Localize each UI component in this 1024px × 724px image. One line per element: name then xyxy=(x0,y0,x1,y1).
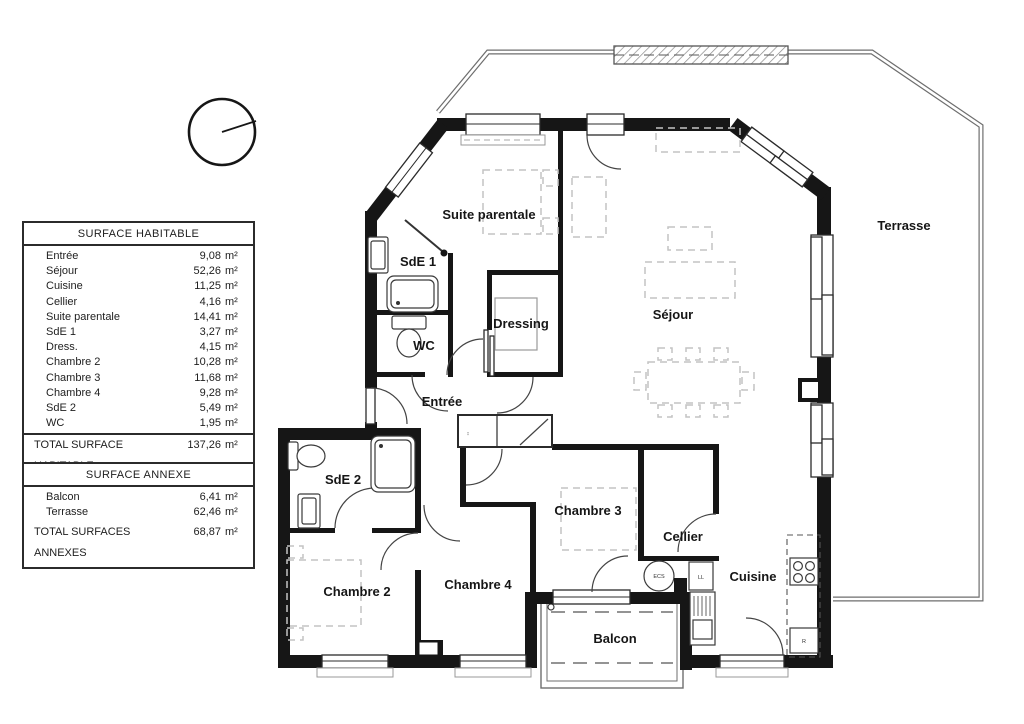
row-label: Dress. xyxy=(24,340,179,355)
row-value: 10,28 xyxy=(179,355,221,370)
row-label: Chambre 2 xyxy=(24,355,179,370)
door-arc-sde2 xyxy=(335,488,375,528)
table-row: Séjour 52,26 m² xyxy=(24,264,253,279)
window-right-lower xyxy=(811,403,833,477)
door-arc-chambre3 xyxy=(466,449,502,485)
row-unit: m² xyxy=(221,340,253,355)
table-row: Suite parentale 14,41 m² xyxy=(24,310,253,325)
sink-sde1 xyxy=(368,237,388,273)
row-unit: m² xyxy=(221,371,253,386)
surface-annexe-table: SURFACE ANNEXE Balcon 6,41 m² Terrasse 6… xyxy=(22,462,255,569)
room-label-cellier: Cellier xyxy=(663,529,703,544)
floorplan-page: ↕ xyxy=(0,0,1024,724)
row-value: 6,41 xyxy=(179,490,221,505)
total-label: TOTAL SURFACES ANNEXES xyxy=(24,522,173,564)
bed-suite-parentale xyxy=(483,170,558,234)
surface-annexe-title: SURFACE ANNEXE xyxy=(24,464,253,487)
table-row: Chambre 4 9,28 m² xyxy=(24,386,253,401)
hallway-closet: ↕ xyxy=(458,415,552,447)
table-row: Entrée 9,08 m² xyxy=(24,249,253,264)
table-row: Chambre 2 10,28 m² xyxy=(24,355,253,370)
compass-icon xyxy=(189,99,256,165)
dining-table-sejour xyxy=(634,348,754,417)
row-value: 9,08 xyxy=(179,249,221,264)
room-label-suite-parentale: Suite parentale xyxy=(442,207,535,222)
row-label: Balcon xyxy=(24,490,179,505)
room-label-dressing: Dressing xyxy=(493,316,549,331)
row-unit: m² xyxy=(221,401,253,416)
shower-sde2 xyxy=(371,436,415,492)
row-label: SdE 1 xyxy=(24,325,179,340)
row-unit: m² xyxy=(221,249,253,264)
room-label-balcon: Balcon xyxy=(593,631,636,646)
washing-machine-ll: LL xyxy=(689,562,713,590)
table-row: Balcon 6,41 m² xyxy=(24,490,253,505)
row-unit: m² xyxy=(221,310,253,325)
svg-text:ECS: ECS xyxy=(653,574,665,580)
surface-habitable-title: SURFACE HABITABLE xyxy=(24,223,253,246)
room-labels: Suite parentale SdE 1 WC Dressing Séjour… xyxy=(323,207,930,646)
window-right-upper xyxy=(811,235,833,357)
table-row: Cellier 4,16 m² xyxy=(24,295,253,310)
water-heater-ecs: ECS xyxy=(644,561,674,591)
row-unit: m² xyxy=(221,490,253,505)
row-label: SdE 2 xyxy=(24,401,179,416)
row-value: 4,16 xyxy=(179,295,221,310)
window-diagonal-left xyxy=(386,143,433,197)
closet-arrow-icon: ↕ xyxy=(467,431,470,437)
furniture xyxy=(287,128,754,640)
row-value: 11,25 xyxy=(179,279,221,294)
room-label-entree: Entrée xyxy=(422,394,462,409)
room-label-wc: WC xyxy=(413,338,435,353)
row-label: Entrée xyxy=(24,249,179,264)
room-label-sde2: SdE 2 xyxy=(325,472,361,487)
table-row: Cuisine 11,25 m² xyxy=(24,279,253,294)
total-value: 137,26 xyxy=(173,435,221,456)
window-chambre2 xyxy=(317,655,393,677)
surface-habitable-table: SURFACE HABITABLE Entrée 9,08 m² Séjour … xyxy=(22,221,255,479)
row-label: WC xyxy=(24,416,179,431)
sofa-sejour xyxy=(645,227,735,298)
window-door-chambre3 xyxy=(553,556,630,604)
svg-text:R: R xyxy=(802,639,806,645)
room-label-sde1: SdE 1 xyxy=(400,254,436,269)
wall-duct xyxy=(800,380,820,400)
window-door-cuisine xyxy=(716,618,788,677)
total-unit: m² xyxy=(221,435,253,456)
table-row: Terrasse 62,46 m² xyxy=(24,505,253,520)
room-label-cuisine: Cuisine xyxy=(730,569,777,584)
table-row: SdE 2 5,49 m² xyxy=(24,401,253,416)
door-dressing-sliding xyxy=(484,330,494,376)
room-label-chambre3: Chambre 3 xyxy=(554,503,621,518)
row-value: 3,27 xyxy=(179,325,221,340)
row-label: Chambre 4 xyxy=(24,386,179,401)
window-suite-parentale xyxy=(461,114,545,145)
room-label-sejour: Séjour xyxy=(653,307,693,322)
room-label-chambre4: Chambre 4 xyxy=(444,577,512,592)
stove-icon xyxy=(790,558,818,585)
row-unit: m² xyxy=(221,505,253,520)
door-arc-sejour xyxy=(497,377,533,413)
surface-annexe-rows: Balcon 6,41 m² Terrasse 62,46 m² xyxy=(24,487,253,522)
row-unit: m² xyxy=(221,295,253,310)
row-label: Cuisine xyxy=(24,279,179,294)
total-unit: m² xyxy=(221,522,253,543)
table-row: SdE 1 3,27 m² xyxy=(24,325,253,340)
table-row: WC 1,95 m² xyxy=(24,416,253,431)
room-label-terrasse: Terrasse xyxy=(877,218,930,233)
row-label: Terrasse xyxy=(24,505,179,520)
windows xyxy=(317,114,833,677)
row-unit: m² xyxy=(221,279,253,294)
row-value: 1,95 xyxy=(179,416,221,431)
door-arc-chambre2 xyxy=(381,533,418,570)
row-value: 9,28 xyxy=(179,386,221,401)
window-diagonal-right xyxy=(741,127,813,187)
entry-door xyxy=(366,388,407,424)
row-value: 4,15 xyxy=(179,340,221,355)
svg-text:LL: LL xyxy=(698,575,704,581)
total-value: 68,87 xyxy=(173,522,221,543)
table-row: Chambre 3 11,68 m² xyxy=(24,371,253,386)
fridge: R xyxy=(790,628,818,653)
row-unit: m² xyxy=(221,355,253,370)
bed-chambre3 xyxy=(561,488,636,550)
door-arc-chambre4 xyxy=(424,505,460,541)
row-value: 14,41 xyxy=(179,310,221,325)
shower-sde1 xyxy=(387,276,438,312)
toilet-sde2 xyxy=(288,442,325,470)
room-label-chambre2: Chambre 2 xyxy=(323,584,390,599)
row-label: Suite parentale xyxy=(24,310,179,325)
row-value: 62,46 xyxy=(179,505,221,520)
closet-chambre4 xyxy=(415,640,443,657)
door-sde1 xyxy=(405,220,448,257)
row-label: Séjour xyxy=(24,264,179,279)
sideboard-sejour xyxy=(656,128,740,152)
cabinet-sejour xyxy=(572,177,606,237)
row-value: 5,49 xyxy=(179,401,221,416)
row-unit: m² xyxy=(221,416,253,431)
row-label: Cellier xyxy=(24,295,179,310)
sink-sde2 xyxy=(298,494,320,528)
surface-habitable-rows: Entrée 9,08 m² Séjour 52,26 m² Cuisine 1… xyxy=(24,246,253,433)
row-label: Chambre 3 xyxy=(24,371,179,386)
row-unit: m² xyxy=(221,325,253,340)
window-chambre4 xyxy=(455,655,531,677)
kitchen-counter: R xyxy=(787,535,820,657)
window-door-sejour xyxy=(587,114,624,169)
row-value: 52,26 xyxy=(179,264,221,279)
table-row: Dress. 4,15 m² xyxy=(24,340,253,355)
row-unit: m² xyxy=(221,264,253,279)
row-unit: m² xyxy=(221,386,253,401)
duct-box xyxy=(674,578,687,592)
kitchen-sink xyxy=(690,592,715,645)
row-value: 11,68 xyxy=(179,371,221,386)
surface-annexe-total: TOTAL SURFACES ANNEXES 68,87 m² xyxy=(24,522,253,567)
terrace-railing xyxy=(614,46,788,64)
